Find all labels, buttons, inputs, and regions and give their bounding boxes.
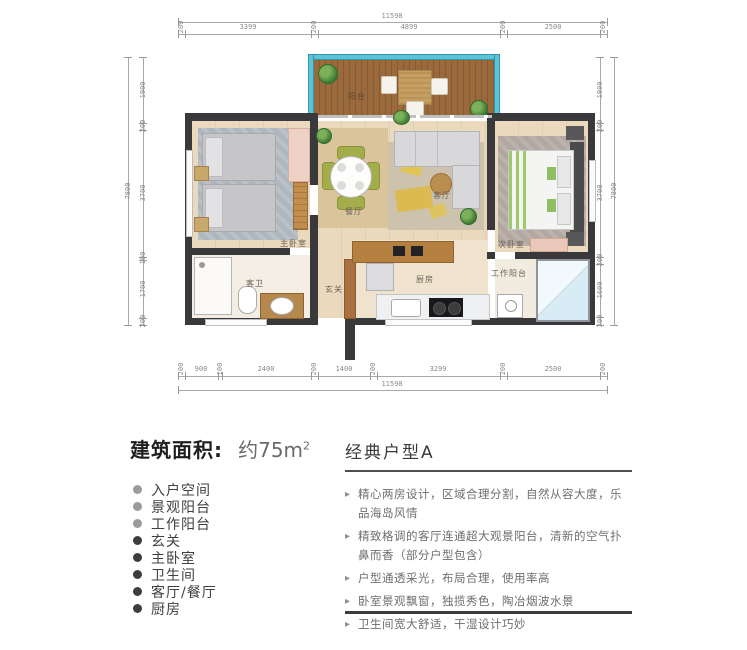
window — [205, 319, 267, 326]
balcony-mat — [398, 70, 432, 105]
dim-tick — [596, 57, 604, 58]
dim-tick — [185, 372, 186, 380]
washer-door — [505, 300, 517, 312]
plant-icon — [393, 110, 410, 125]
dim-label: 2400 — [258, 365, 275, 373]
dim-label: 200 — [369, 363, 377, 376]
room-label-balcony: 阳台 — [348, 91, 366, 102]
room-label-bathroom: 客卫 — [246, 278, 264, 289]
washer-icon — [497, 294, 523, 318]
stove-icon — [429, 298, 463, 317]
bed-icon — [508, 150, 574, 230]
dim-line — [178, 390, 607, 391]
sink-icon — [391, 299, 421, 317]
dim-label: 200 — [599, 363, 607, 376]
bullet-dot-icon — [133, 485, 142, 494]
wall — [310, 113, 318, 185]
list-item: 客厅/餐厅 — [133, 583, 217, 600]
room-label-work-balcony: 工作阳台 — [491, 268, 527, 279]
dim-label: 1600 — [596, 282, 604, 299]
seat-cushion — [381, 76, 397, 94]
closet — [288, 128, 310, 182]
list-item: 卫生间 — [133, 566, 217, 583]
dim-label: 1900 — [596, 82, 604, 99]
dim-label: 200 — [139, 120, 147, 133]
dim-label: 200 — [499, 21, 507, 34]
dim-tick — [139, 57, 147, 58]
feature-item: ▸精致格调的客厅连通超大观景阳台，清新的空气扑鼻而香（部分户型包含） — [345, 527, 632, 565]
dim-tick — [318, 30, 319, 38]
floorplan-page: 11598 200 3399 200 4899 200 2500 200 200… — [0, 0, 747, 650]
dim-label: 11598 — [381, 12, 402, 20]
sofa-seam — [437, 132, 438, 166]
dim-tick — [377, 372, 378, 380]
green-cushion — [547, 199, 556, 212]
nightstand — [194, 166, 209, 181]
section-bottom-rule — [345, 611, 632, 614]
list-item: 景观阳台 — [133, 498, 217, 515]
dim-label: 200 — [599, 21, 607, 34]
bullet-dot-icon — [133, 519, 142, 528]
feature-bullet-icon: ▸ — [345, 569, 351, 588]
dim-label: 2500 — [545, 365, 562, 373]
dim-label: 7800 — [124, 183, 132, 200]
list-item: 工作阳台 — [133, 515, 217, 532]
plant-icon — [460, 208, 477, 225]
wall — [492, 113, 595, 121]
dim-tick — [185, 30, 186, 38]
dim-tick — [610, 325, 618, 326]
dim-label: 900 — [195, 365, 208, 373]
feature-item: ▸卧室景观飘窗，独揽秀色，陶冶烟波水景 — [345, 592, 632, 611]
dim-tick — [607, 18, 608, 26]
dim-label: 11598 — [381, 380, 402, 388]
feature-bullet-icon: ▸ — [345, 592, 351, 611]
bullet-dot-icon — [133, 587, 142, 596]
unit-type-block: 经典户型A ▸精心两房设计，区域合理分割，自然从容大度，乐品海岛风情 ▸精致格调… — [345, 438, 632, 638]
dim-label: 1900 — [139, 82, 147, 99]
burner — [448, 302, 461, 315]
room-list: 入户空间 景观阳台 工作阳台 玄关 主卧室 卫生间 客厅/餐厅 厨房 — [133, 481, 217, 617]
dining-table — [330, 156, 372, 198]
dim-label: 200 — [596, 315, 604, 328]
list-item: 厨房 — [133, 600, 217, 617]
shower — [194, 257, 232, 315]
list-item: 入户空间 — [133, 481, 217, 498]
feature-text: 卧室景观飘窗，独揽秀色，陶冶烟波水景 — [358, 594, 574, 608]
dim-label: 4899 — [401, 23, 418, 31]
dim-line — [178, 34, 607, 35]
dim-tick — [124, 325, 132, 326]
dim-line — [178, 376, 607, 377]
plate — [337, 163, 346, 172]
room-label-living: 客厅 — [433, 190, 451, 201]
plate — [355, 181, 364, 190]
dim-label: 2500 — [545, 23, 562, 31]
dim-label: 3299 — [430, 365, 447, 373]
dim-tick — [607, 372, 608, 380]
dim-label: 1400 — [336, 365, 353, 373]
room-label-master-bedroom: 主卧室 — [280, 238, 307, 249]
countertop-item — [393, 246, 405, 256]
dim-label: 3700 — [139, 185, 147, 202]
wall — [487, 113, 495, 230]
feature-item: ▸户型通透采光，布局合理，使用率高 — [345, 569, 632, 588]
feature-item: ▸卫生间宽大舒适，干湿设计巧妙 — [345, 615, 632, 634]
kitchen-counter — [376, 294, 490, 320]
window — [385, 319, 472, 326]
entry-cabinet — [344, 259, 356, 319]
toilet-icon — [238, 286, 257, 314]
dim-label: 3700 — [596, 185, 604, 202]
plant-icon — [316, 128, 332, 144]
feature-item: ▸精心两房设计，区域合理分割，自然从容大度，乐品海岛风情 — [345, 485, 632, 523]
nightstand — [566, 232, 584, 246]
building-area-row: 建筑面积: 约75m2 — [130, 434, 310, 463]
window — [186, 150, 193, 237]
bench — [530, 238, 568, 252]
fridge — [366, 263, 394, 291]
dim-tick — [318, 372, 319, 380]
feature-bullet-icon: ▸ — [345, 485, 351, 504]
plate — [355, 163, 364, 172]
dim-label: 200 — [310, 363, 318, 376]
sink-icon — [270, 297, 294, 315]
dim-tick — [507, 30, 508, 38]
dim-label: 200 — [596, 254, 604, 267]
pillow — [557, 193, 571, 225]
wardrobe — [293, 182, 308, 230]
dim-label: 200 — [499, 363, 507, 376]
bullet-dot-icon — [133, 570, 142, 579]
dim-label: 200 — [139, 315, 147, 328]
plant-icon — [318, 64, 338, 84]
area-number: 约75m — [238, 438, 303, 462]
wall — [515, 252, 595, 259]
dim-label: 200 — [310, 21, 318, 34]
unit-type-title: 经典户型A — [345, 438, 632, 463]
dim-label: 200 — [596, 120, 604, 133]
balcony-glass-rail — [494, 54, 500, 115]
feature-text: 精致格调的客厅连通超大观景阳台，清新的空气扑鼻而香（部分户型包含） — [358, 529, 622, 562]
dim-tick — [178, 386, 179, 394]
sofa-chaise — [452, 165, 480, 209]
nightstand — [194, 217, 209, 232]
dim-label: 100 — [139, 252, 147, 265]
title-underline — [345, 470, 632, 472]
nightstand — [566, 126, 584, 140]
shower-head-icon — [199, 262, 205, 268]
feature-text: 卫生间宽大舒适，干湿设计巧妙 — [358, 617, 526, 631]
room-name: 厨房 — [151, 599, 181, 619]
plate — [337, 181, 346, 190]
room-label-entry: 玄关 — [325, 284, 343, 295]
dim-label: 3399 — [240, 23, 257, 31]
burner — [433, 302, 446, 315]
bullet-dot-icon — [133, 536, 142, 545]
green-cushion — [547, 167, 556, 180]
room-label-dining: 餐厅 — [345, 206, 363, 217]
feature-bullet-icon: ▸ — [345, 615, 351, 634]
dim-tick — [607, 386, 608, 394]
bullet-dot-icon — [133, 502, 142, 511]
bed-icon — [202, 184, 276, 232]
wall — [487, 252, 495, 259]
countertop-item — [411, 246, 423, 256]
feature-text: 精心两房设计，区域合理分割，自然从容大度，乐品海岛风情 — [358, 487, 622, 520]
work-balcony-window — [536, 259, 590, 322]
list-item: 玄关 — [133, 532, 217, 549]
dim-tick — [607, 30, 608, 38]
room-label-kitchen: 厨房 — [416, 274, 434, 285]
dim-tick — [610, 57, 618, 58]
room-label-second-bedroom: 次卧室 — [498, 239, 525, 250]
building-area-label: 建筑面积: — [130, 438, 223, 462]
building-area-value: 约75m2 — [238, 438, 310, 462]
dim-label: 7800 — [610, 183, 618, 200]
dim-label: 200 — [177, 21, 185, 34]
dim-tick — [507, 372, 508, 380]
dim-tick — [124, 57, 132, 58]
dim-label: 200 — [177, 363, 185, 376]
feature-text: 户型通透采光，布局合理，使用率高 — [358, 571, 550, 585]
feature-bullet-icon: ▸ — [345, 527, 351, 546]
area-sup: 2 — [303, 439, 310, 452]
wall — [310, 215, 318, 325]
sofa-icon — [394, 131, 480, 167]
vanity — [260, 293, 304, 319]
kitchen-island — [352, 241, 454, 263]
bed-icon — [202, 133, 276, 181]
bullet-dot-icon — [133, 553, 142, 562]
list-item: 主卧室 — [133, 549, 217, 566]
pillow — [557, 156, 571, 188]
sofa-seam — [415, 132, 416, 166]
wall — [185, 113, 318, 121]
green-blanket — [509, 151, 527, 229]
entry-stub-wall — [345, 318, 355, 360]
seat-cushion — [431, 78, 448, 95]
dim-label: 1700 — [139, 281, 147, 298]
dim-label: 100 — [216, 363, 224, 376]
window — [589, 160, 596, 222]
bullet-dot-icon — [133, 604, 142, 613]
wall — [185, 248, 290, 255]
